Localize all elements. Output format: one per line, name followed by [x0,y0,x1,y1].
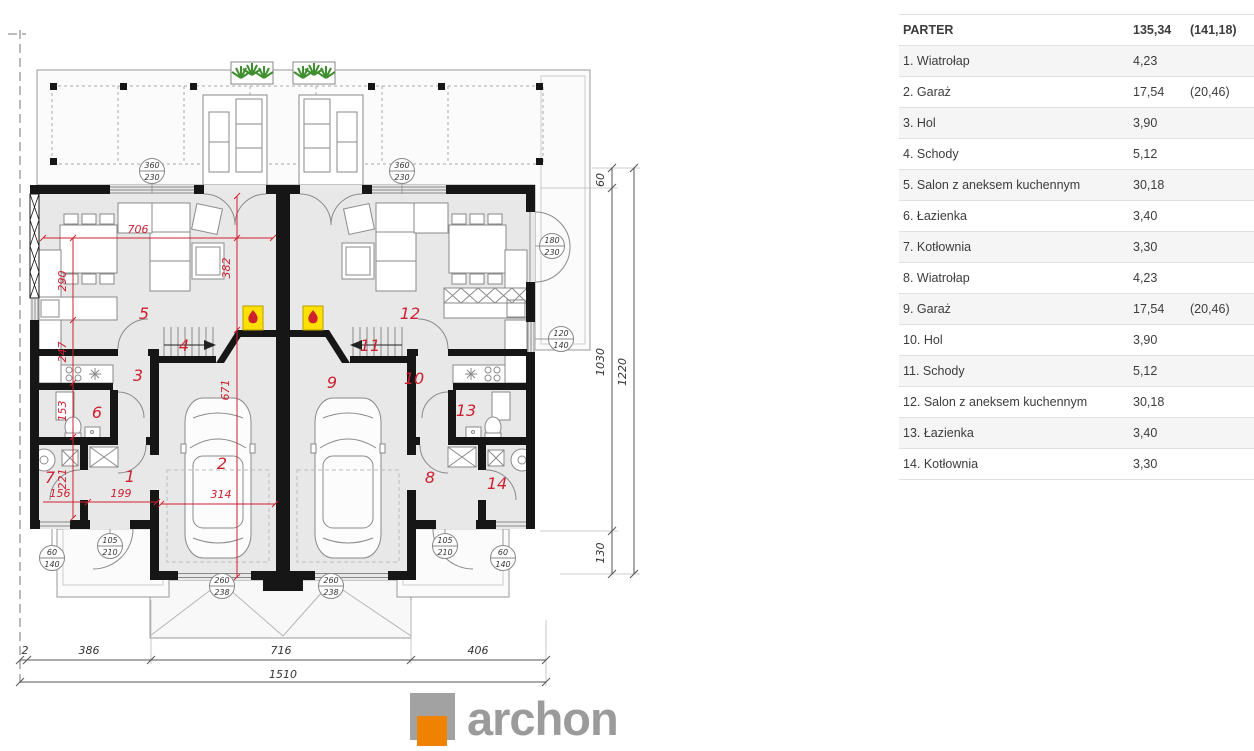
dim-label: 199 [111,487,132,500]
table-row: 2. Garaż 17,54 (20,46) [899,77,1254,108]
room-area: 30,18 [1133,178,1190,192]
room-name: 5. Salon z aneksem kuchennym [899,178,1133,192]
room-name: 10. Hol [899,333,1133,347]
floor-title: PARTER [899,23,1133,37]
svg-text:210: 210 [102,548,117,557]
archon-logo-mark-icon [403,690,453,747]
dim-label: 406 [468,644,489,657]
table-row: 5. Salon z aneksem kuchennym 30,18 [899,170,1254,201]
floor-area-total: 135,34 [1133,23,1190,37]
room-area: 3,30 [1133,240,1190,254]
room-area: 3,30 [1133,457,1190,471]
dim-label: 156 [50,487,71,500]
room-name: 6. Łazienka [899,209,1133,223]
table-row: 12. Salon z aneksem kuchennym 30,18 [899,387,1254,418]
room-number: 5 [139,304,149,323]
room-area-extra: (20,46) [1190,302,1254,316]
room-area: 5,12 [1133,364,1190,378]
room-area: 5,12 [1133,147,1190,161]
svg-text:60: 60 [498,548,508,557]
room-area: 17,54 [1133,85,1190,99]
room-number: 13 [456,401,476,420]
table-header-row: PARTER 135,34 (141,18) [899,15,1254,46]
size-tag: 360 230 [140,159,165,184]
svg-text:105: 105 [102,536,117,545]
dim-label: 153 [56,401,69,422]
dim-label: 2 [22,644,29,657]
room-name: 1. Wiatrołap [899,54,1133,68]
room-number: 6 [92,403,102,422]
table-row: 6. Łazienka 3,40 [899,201,1254,232]
svg-text:140: 140 [553,341,568,350]
archon-logo-text: archon [467,690,618,747]
dim-label: 247 [56,342,69,363]
room-number: 7 [45,468,56,487]
floor-plan-panel: 706 290 247 153 221 156 199 382 671 314 … [0,0,690,705]
table-row: 8. Wiatrołap 4,23 [899,263,1254,294]
property-boundary-line [8,30,26,688]
wall-hatch-section [30,194,39,298]
svg-text:230: 230 [144,173,159,182]
table-row: 10. Hol 3,90 [899,325,1254,356]
dim-label: 1030 [594,348,607,376]
room-number: 9 [327,373,337,392]
car-left-garage [181,398,255,558]
room-area: 3,90 [1133,116,1190,130]
room-number: 1 [125,467,135,486]
size-tag: 260 238 [319,574,344,599]
table-row: 4. Schody 5,12 [899,139,1254,170]
svg-text:105: 105 [437,536,452,545]
car-right-garage [311,398,385,558]
room-name: 4. Schody [899,147,1133,161]
room-name: 8. Wiatrołap [899,271,1133,285]
room-area: 30,18 [1133,395,1190,409]
size-tag: 60 140 [491,546,516,571]
svg-text:230: 230 [544,248,559,257]
room-number: 12 [400,304,420,323]
svg-text:140: 140 [44,560,59,569]
size-tag: 260 238 [210,574,235,599]
dim-label: 130 [594,543,607,564]
room-number: 4 [179,336,189,355]
table-row: 14. Kotłownia 3,30 [899,449,1254,480]
svg-text:210: 210 [437,548,452,557]
size-tag: 105 210 [98,534,123,559]
room-area: 3,40 [1133,209,1190,223]
dim-label: 1220 [616,358,629,386]
dim-label: 706 [128,223,149,236]
room-name: 11. Schody [899,364,1133,378]
dim-label: 671 [219,380,232,401]
room-number: 11 [360,336,380,355]
dim-label: 60 [594,173,607,187]
room-area: 3,90 [1133,333,1190,347]
dim-label: 1510 [269,668,297,681]
size-tag: 180 230 [540,234,565,259]
table-row: 9. Garaż 17,54 (20,46) [899,294,1254,325]
table-row: 1. Wiatrołap 4,23 [899,46,1254,77]
table-row: 3. Hol 3,90 [899,108,1254,139]
dim-label: 386 [79,644,100,657]
room-name: 14. Kotłownia [899,457,1133,471]
room-name: 7. Kotłownia [899,240,1133,254]
dim-label: 382 [220,258,233,279]
room-area: 4,23 [1133,271,1190,285]
svg-text:260: 260 [323,576,338,585]
room-area: 4,23 [1133,54,1190,68]
svg-text:260: 260 [214,576,229,585]
svg-text:360: 360 [394,161,409,170]
room-area: 17,54 [1133,302,1190,316]
size-tag: 105 210 [433,534,458,559]
size-tag: 60 140 [40,546,65,571]
fireplace-right [303,306,323,330]
fireplace-left [243,306,263,330]
svg-text:120: 120 [553,329,568,338]
room-area-extra: (20,46) [1190,85,1254,99]
svg-text:230: 230 [394,173,409,182]
svg-text:60: 60 [47,548,57,557]
room-number: 3 [133,366,143,385]
table-row: 7. Kotłownia 3,30 [899,232,1254,263]
room-number: 10 [404,369,424,388]
size-tag: 120 140 [549,327,574,352]
room-legend-table: PARTER 135,34 (141,18) 1. Wiatrołap 4,23… [899,14,1254,480]
svg-text:238: 238 [214,588,229,597]
floor-plan-drawing: 706 290 247 153 221 156 199 382 671 314 … [0,0,690,700]
room-number: 8 [425,468,435,487]
room-name: 13. Łazienka [899,426,1133,440]
size-tag: 360 230 [390,159,415,184]
room-number: 14 [487,474,507,493]
svg-text:140: 140 [495,560,510,569]
room-name: 3. Hol [899,116,1133,130]
room-name: 2. Garaż [899,85,1133,99]
room-name: 12. Salon z aneksem kuchennym [899,395,1133,409]
table-row: 11. Schody 5,12 [899,356,1254,387]
svg-text:180: 180 [544,236,559,245]
dim-label: 314 [211,488,232,501]
svg-text:238: 238 [323,588,338,597]
room-name: 9. Garaż [899,302,1133,316]
table-row: 13. Łazienka 3,40 [899,418,1254,449]
floor-area-gross: (141,18) [1190,23,1254,37]
dim-label: 290 [56,271,69,292]
room-number: 2 [217,454,227,473]
svg-text:360: 360 [144,161,159,170]
room-area: 3,40 [1133,426,1190,440]
archon-logo: archon [403,690,618,747]
dim-label: 716 [271,644,292,657]
